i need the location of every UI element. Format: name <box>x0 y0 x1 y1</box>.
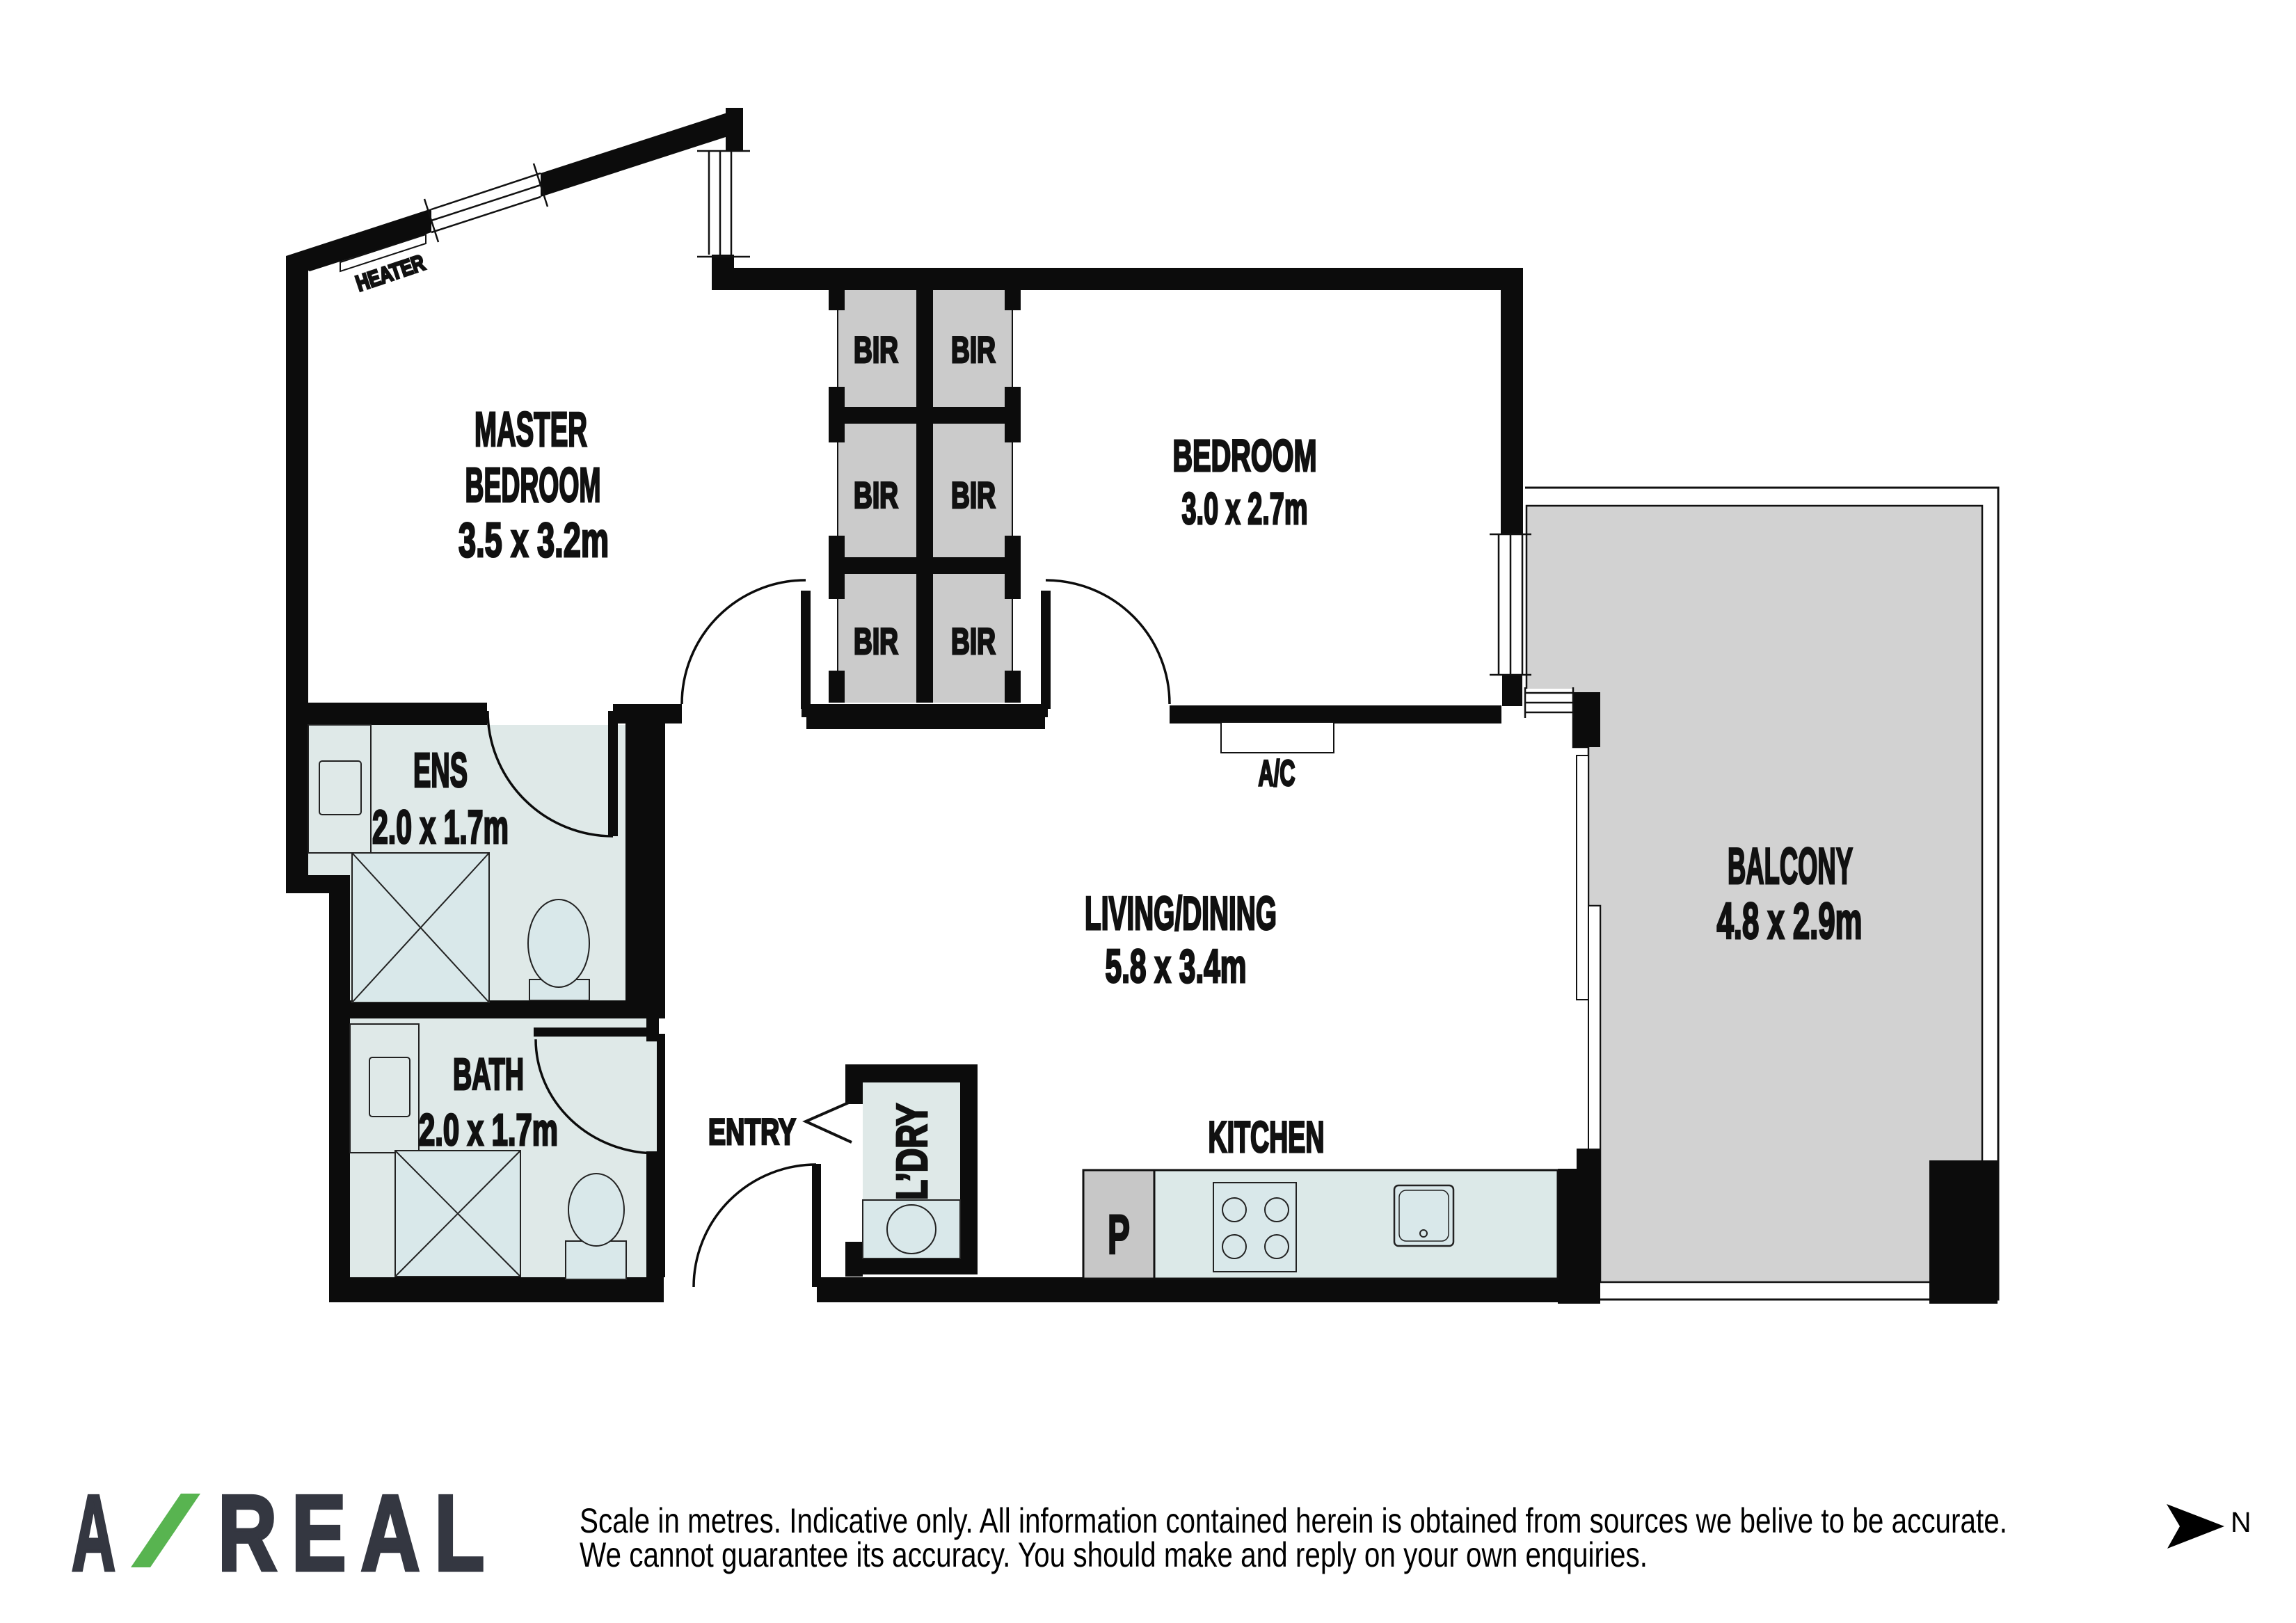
svg-text:BIR: BIR <box>951 475 996 516</box>
svg-text:L’DRY: L’DRY <box>888 1103 936 1200</box>
svg-text:BIR: BIR <box>951 621 996 662</box>
svg-text:LIVING/DINING: LIVING/DINING <box>1085 887 1277 940</box>
svg-text:N: N <box>2231 1506 2251 1538</box>
svg-text:3.5 x 3.2m: 3.5 x 3.2m <box>459 513 609 567</box>
svg-text:5.8 x 3.4m: 5.8 x 3.4m <box>1106 940 1247 993</box>
svg-text:BEDROOM: BEDROOM <box>465 458 601 512</box>
svg-text:BATH: BATH <box>453 1049 524 1099</box>
svg-text:2.0 x 1.7m: 2.0 x 1.7m <box>419 1105 558 1155</box>
svg-text:ENTRY: ENTRY <box>708 1112 796 1153</box>
svg-text:BALCONY: BALCONY <box>1728 838 1853 895</box>
svg-text:3.0 x 2.7m: 3.0 x 2.7m <box>1182 483 1308 534</box>
svg-text:ENS: ENS <box>413 743 468 797</box>
svg-text:A/C: A/C <box>1259 753 1296 794</box>
svg-text:BIR: BIR <box>854 330 898 371</box>
svg-text:MASTER: MASTER <box>475 402 587 456</box>
svg-text:BIR: BIR <box>854 621 898 662</box>
svg-text:A: A <box>72 1473 115 1593</box>
svg-text:Scale in metres. Indicative on: Scale in metres. Indicative only. All in… <box>580 1501 2007 1540</box>
svg-text:KITCHEN: KITCHEN <box>1209 1113 1325 1162</box>
svg-text:BIR: BIR <box>854 475 898 516</box>
svg-text:BIR: BIR <box>951 330 996 371</box>
svg-text:4.8 x 2.9m: 4.8 x 2.9m <box>1717 893 1863 950</box>
svg-text:P: P <box>1108 1204 1130 1265</box>
svg-text:We cannot guarantee its accura: We cannot guarantee its accuracy. You sh… <box>580 1535 1648 1574</box>
svg-text:REAL: REAL <box>218 1473 499 1593</box>
svg-text:BEDROOM: BEDROOM <box>1173 431 1317 481</box>
svg-text:2.0 x 1.7m: 2.0 x 1.7m <box>372 801 509 854</box>
